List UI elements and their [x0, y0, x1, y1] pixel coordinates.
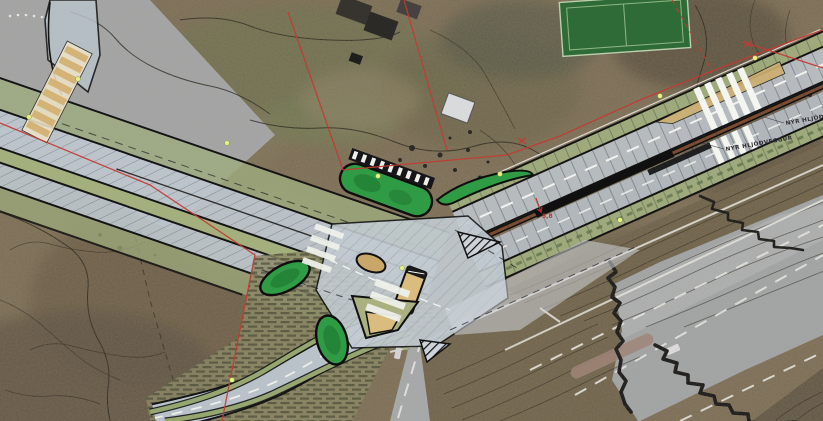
aerial-plan-map: NÝR HLJÓÐVEGGUR NÝR HLJÓÐVEGGUR 5,8	[0, 0, 823, 421]
sports-field	[559, 0, 690, 56]
red-dimension-note: 5,8	[542, 213, 553, 220]
map-canvas: NÝR HLJÓÐVEGGUR NÝR HLJÓÐVEGGUR 5,8	[0, 0, 823, 421]
